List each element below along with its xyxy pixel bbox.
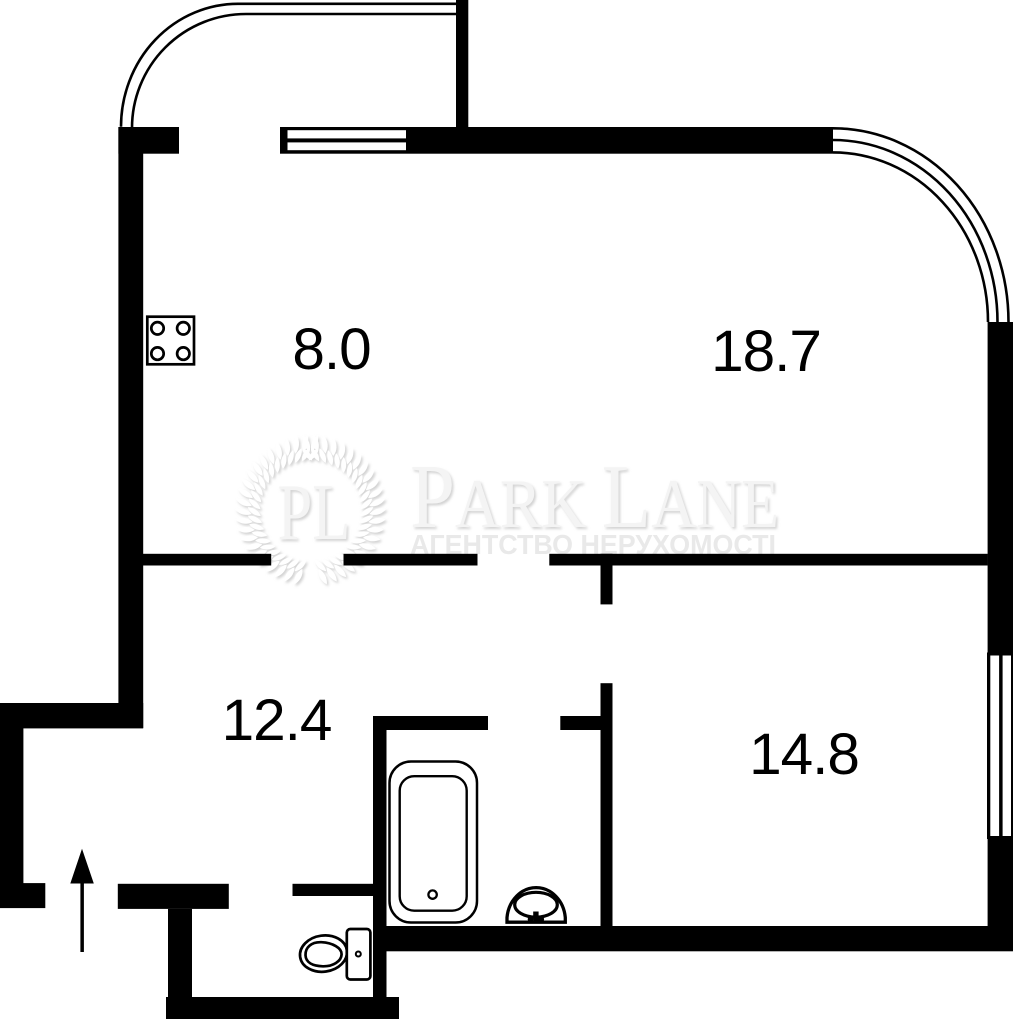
svg-text:14.8: 14.8 (749, 722, 859, 787)
svg-text:PL: PL (278, 469, 351, 557)
svg-text:18.7: 18.7 (711, 319, 821, 384)
svg-text:8.0: 8.0 (292, 317, 370, 382)
svg-text:12.4: 12.4 (222, 688, 332, 753)
